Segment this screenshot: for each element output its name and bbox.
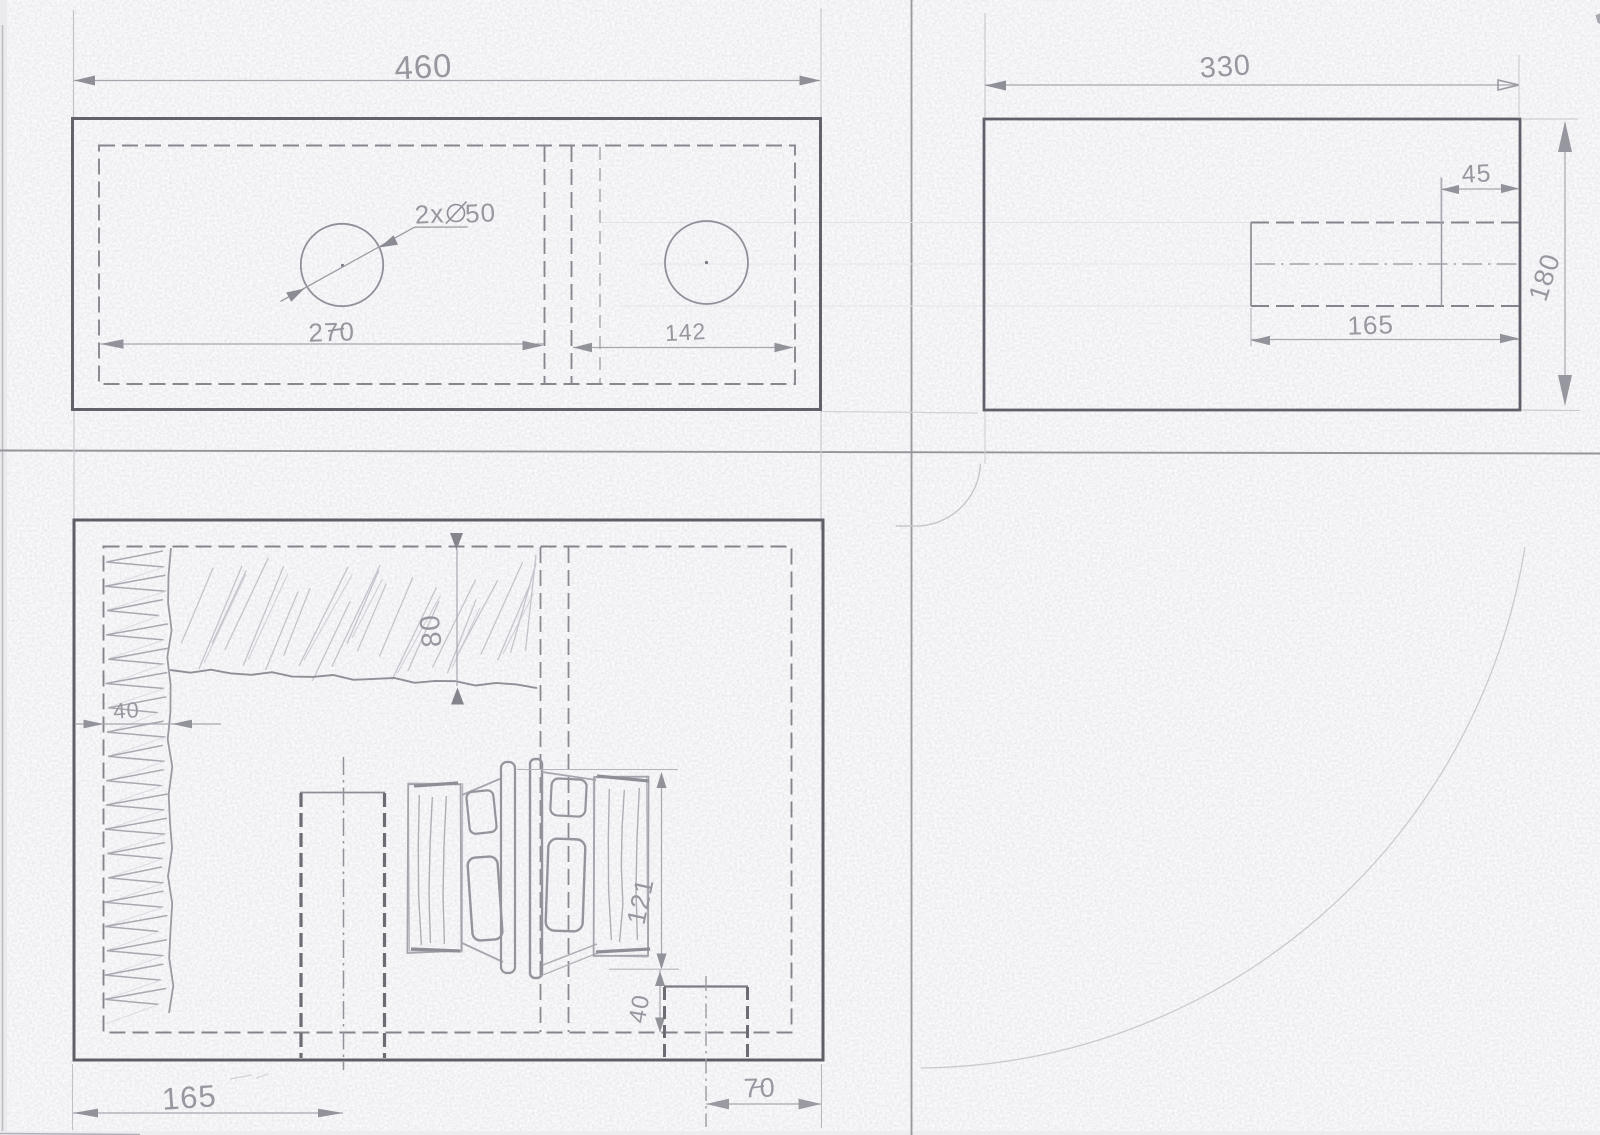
svg-text:165: 165 [161,1078,218,1117]
svg-text:45: 45 [1461,159,1492,189]
svg-text:270: 270 [308,316,355,348]
svg-text:142: 142 [664,318,707,346]
svg-text:330: 330 [1199,49,1252,85]
svg-text:80: 80 [414,613,448,649]
svg-text:165: 165 [1347,309,1394,341]
svg-text:50: 50 [464,197,496,229]
svg-text:40: 40 [624,992,656,1025]
svg-text:460: 460 [393,47,453,87]
svg-text:2x: 2x [414,198,445,230]
svg-text:40: 40 [112,697,140,724]
svg-text:70: 70 [743,1072,776,1103]
